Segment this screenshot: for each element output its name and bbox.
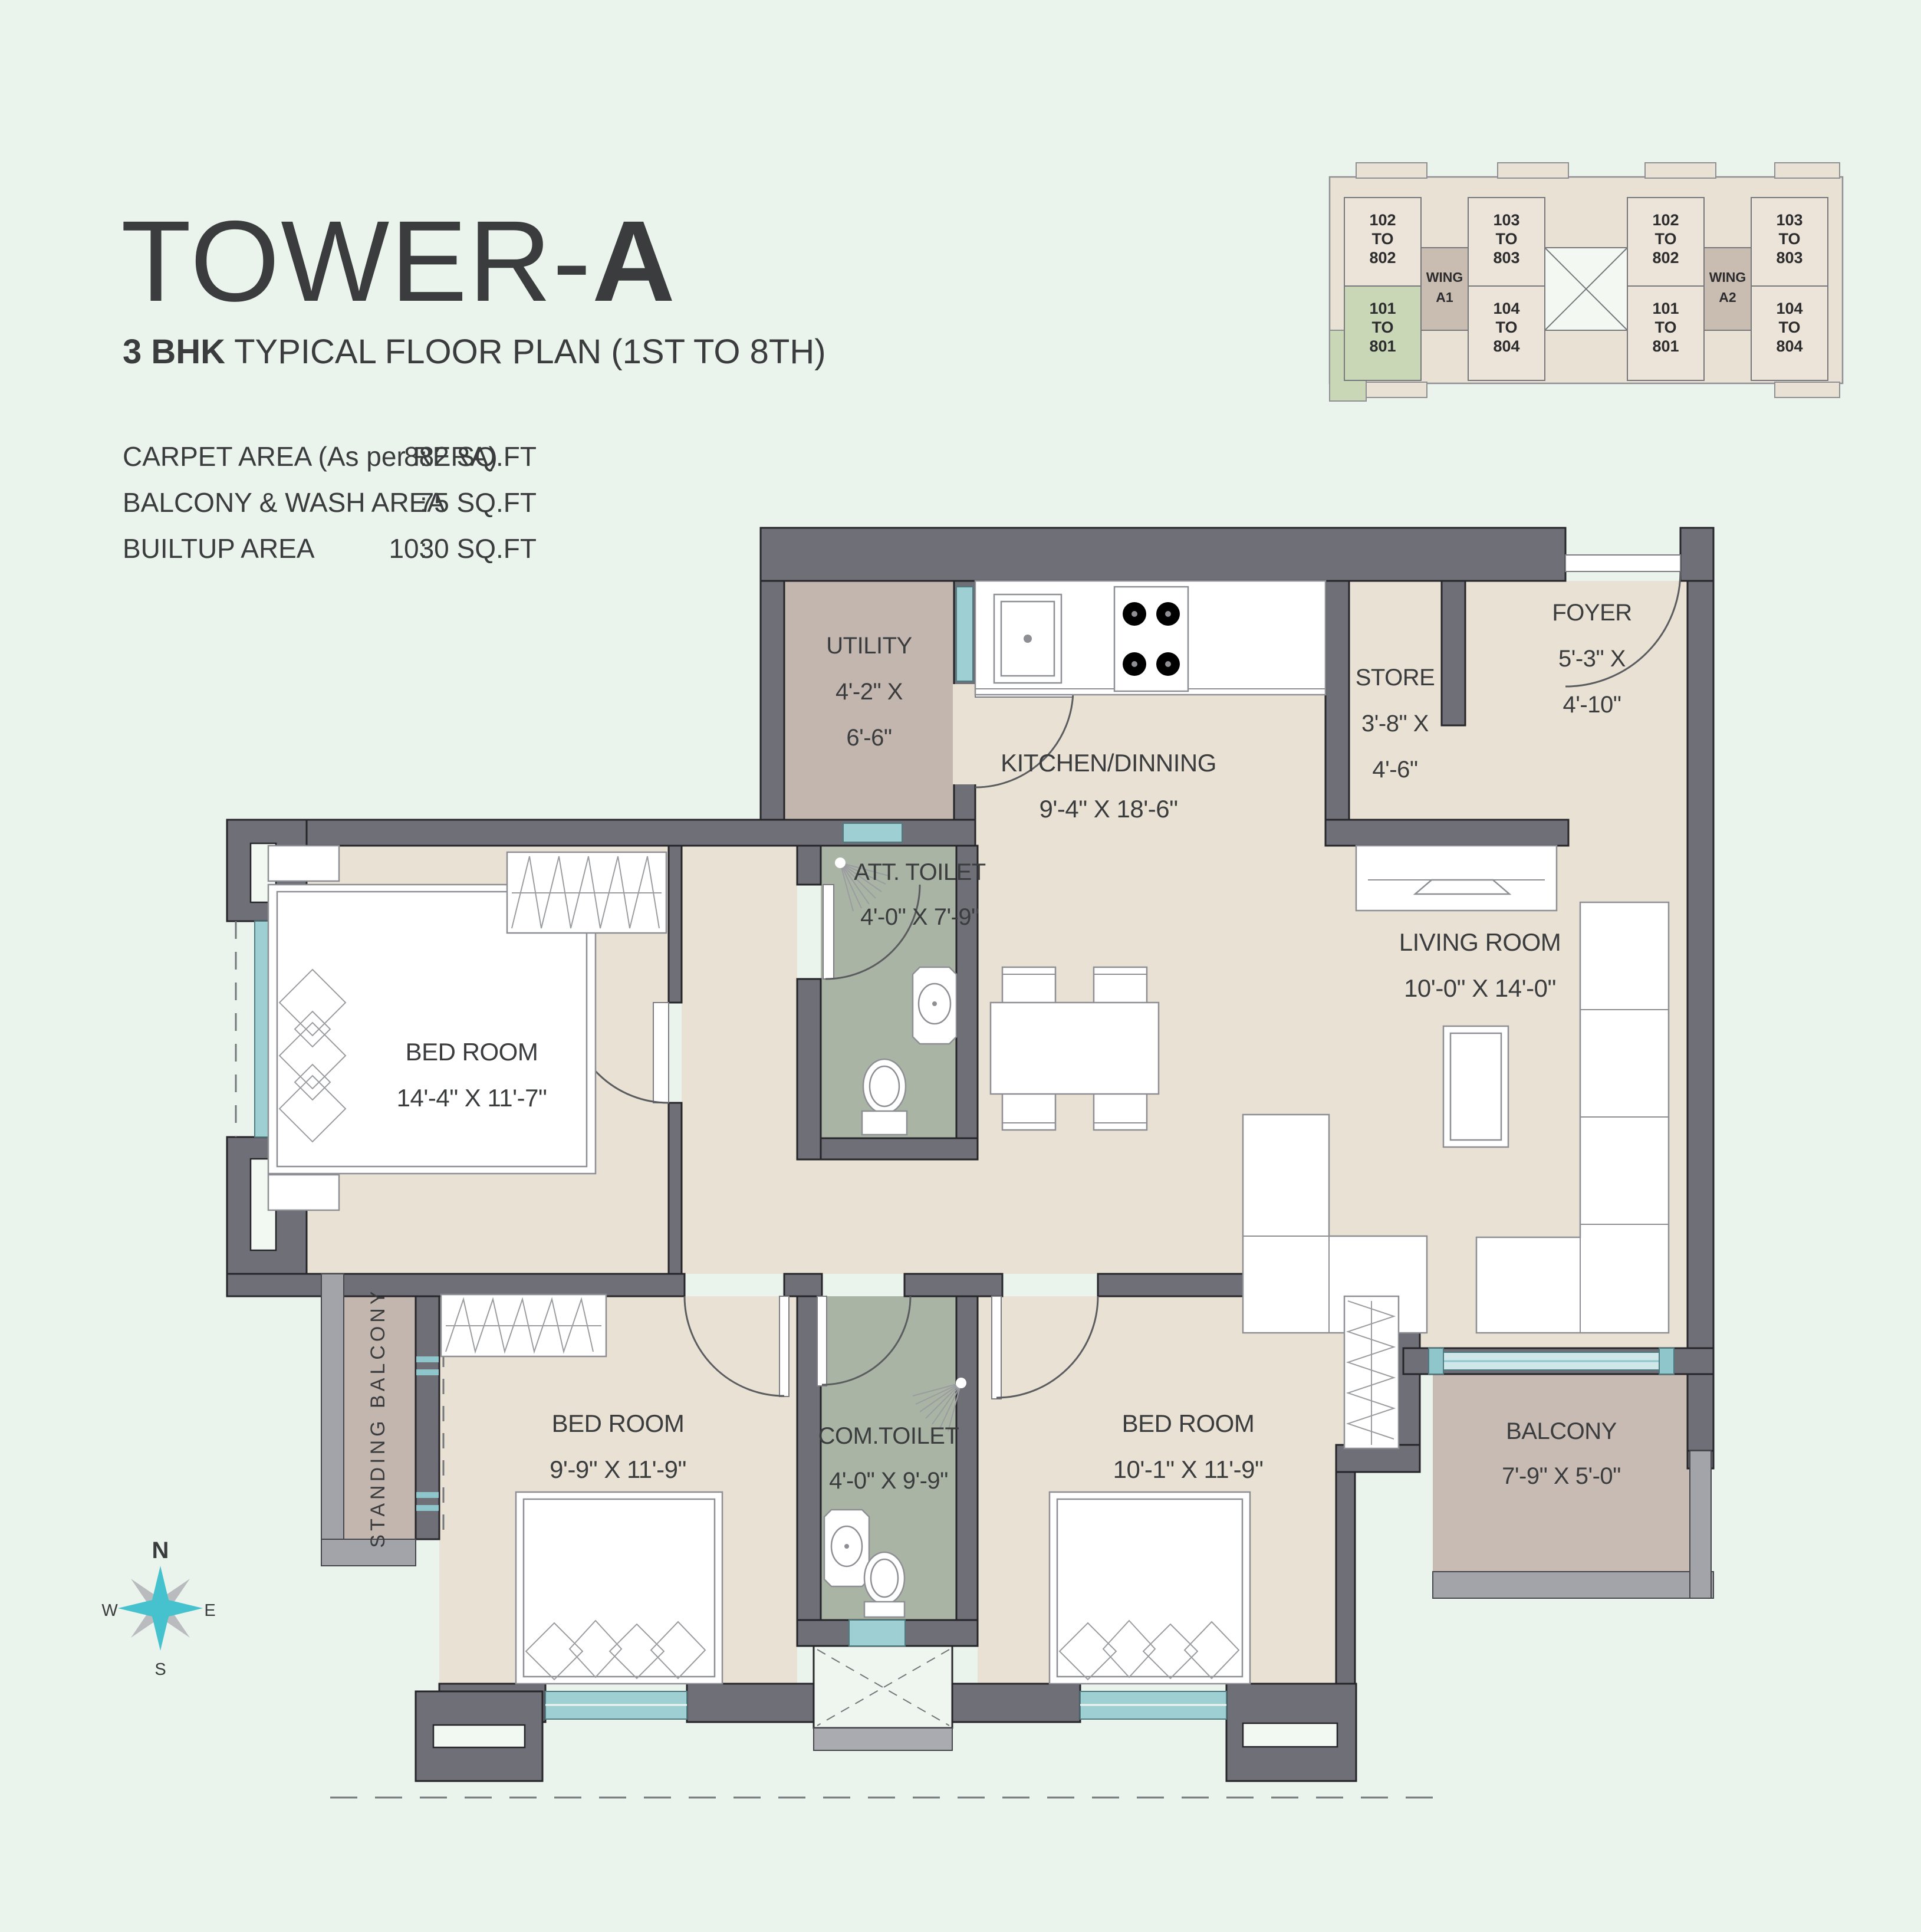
key-label: TO bbox=[1371, 230, 1393, 248]
compass-rose: N E S W bbox=[101, 1537, 215, 1679]
label-store: STORE bbox=[1356, 665, 1435, 691]
bedside-table bbox=[268, 1175, 339, 1210]
label-utility-dim: 6'-6" bbox=[846, 725, 892, 751]
bedside-table bbox=[268, 846, 339, 881]
key-label: 801 bbox=[1369, 337, 1396, 355]
label-living: LIVING ROOM bbox=[1399, 928, 1561, 956]
key-label: 103 bbox=[1493, 211, 1519, 229]
label-foyer-dim: 4'-10" bbox=[1563, 692, 1621, 718]
key-label: 804 bbox=[1776, 337, 1802, 355]
area-table: CARPET AREA (As per RERA) : 882 SQ.FT BA… bbox=[123, 441, 537, 564]
key-wing-label: A1 bbox=[1436, 290, 1453, 305]
basin-drain bbox=[932, 1001, 937, 1006]
compass-n: N bbox=[152, 1537, 169, 1563]
label-standing-balcony: STANDING BALCONY bbox=[367, 1287, 389, 1547]
key-wing-a1 bbox=[1421, 248, 1468, 330]
key-plan-tab bbox=[1775, 382, 1840, 397]
bed-left-inner bbox=[524, 1499, 715, 1677]
label-living-dim: 10'-0" X 14'-0" bbox=[1404, 974, 1556, 1002]
bed-right-inner bbox=[1057, 1499, 1242, 1677]
wall-att-toilet-right bbox=[956, 846, 978, 1159]
coffee-table-top bbox=[1450, 1033, 1501, 1140]
label-bedroom-master-dim: 14'-4" X 11'-7" bbox=[397, 1084, 547, 1112]
label-foyer: FOYER bbox=[1552, 600, 1631, 626]
title-main: TOWER- bbox=[121, 197, 592, 326]
shower-head bbox=[835, 857, 846, 868]
compass-e: E bbox=[204, 1601, 215, 1620]
wall-bedrooms-band-a bbox=[227, 1274, 685, 1296]
burner-dot bbox=[1165, 661, 1171, 667]
label-att-toilet-dim: 4'-0" X 7'-9" bbox=[860, 904, 979, 930]
wall-att-toilet-bottom bbox=[821, 1138, 978, 1159]
builtup-area-label: BUILTUP AREA bbox=[123, 533, 315, 564]
label-foyer-dim: 5'-3" X bbox=[1558, 646, 1626, 672]
toilet-com-tank bbox=[864, 1602, 904, 1617]
key-label: TO bbox=[1778, 230, 1800, 248]
title-block: TOWER-A 3 BHK TYPICAL FLOOR PLAN (1ST TO… bbox=[121, 197, 826, 564]
key-wing-label: WING bbox=[1426, 270, 1463, 285]
compass-cardinal-star bbox=[118, 1566, 203, 1651]
wall-bedrooms-band-c bbox=[904, 1274, 1002, 1296]
key-wing-label: A2 bbox=[1719, 290, 1736, 305]
wall-bottom-3 bbox=[952, 1684, 1080, 1722]
window-att-toilet bbox=[843, 823, 902, 842]
sink-drain bbox=[1024, 635, 1032, 643]
wall-bottom-2 bbox=[687, 1684, 814, 1722]
pier-slot bbox=[1243, 1723, 1337, 1747]
wall-com-toilet-right bbox=[956, 1296, 978, 1645]
bedroom-right-door-leaf bbox=[992, 1296, 1001, 1399]
builtup-area-value: 1030 SQ.FT bbox=[389, 533, 537, 564]
att-toilet-door-leaf bbox=[823, 885, 834, 979]
key-plan: 102 TO 802 101 TO 801 WING A1 103 TO 803… bbox=[1330, 163, 1843, 401]
key-label: TO bbox=[1495, 230, 1517, 248]
key-label: TO bbox=[1654, 230, 1676, 248]
stove-icon bbox=[1114, 587, 1188, 691]
bedroom-left-door-leaf bbox=[779, 1296, 789, 1397]
wall-bedroom-master-right-b bbox=[669, 1103, 682, 1274]
key-label: 104 bbox=[1776, 300, 1802, 317]
parapet-balcony-bottom bbox=[1433, 1572, 1713, 1598]
subtitle-bold: 3 BHK bbox=[123, 333, 225, 371]
pier-slot bbox=[433, 1725, 525, 1747]
label-store-dim: 3'-8" X bbox=[1361, 711, 1429, 737]
key-label: 802 bbox=[1369, 249, 1396, 267]
subtitle-rest: TYPICAL FLOOR PLAN (1ST TO 8TH) bbox=[225, 333, 826, 371]
key-label: 103 bbox=[1776, 211, 1802, 229]
label-balcony: BALCONY bbox=[1506, 1418, 1617, 1444]
sliding-post bbox=[1429, 1348, 1443, 1374]
key-label: 102 bbox=[1369, 211, 1396, 229]
window-utility bbox=[956, 587, 973, 681]
wall-top-right bbox=[1680, 528, 1713, 581]
wall-utility-left bbox=[761, 581, 784, 820]
parapet-balcony-right bbox=[1690, 1451, 1711, 1598]
standing-balcony-window-mark bbox=[416, 1505, 439, 1511]
master-bedroom-door-leaf bbox=[653, 1003, 669, 1103]
key-label: 802 bbox=[1652, 249, 1679, 267]
wall-balcony-right-upper bbox=[1688, 1374, 1713, 1451]
wash-counter bbox=[1356, 846, 1557, 911]
toilet-com-bowl bbox=[871, 1559, 898, 1597]
wall-foyer-left bbox=[1442, 581, 1465, 725]
key-plan-tab bbox=[1498, 163, 1568, 178]
label-bedroom-left: BED ROOM bbox=[552, 1409, 685, 1437]
window-com-toilet bbox=[849, 1620, 905, 1646]
label-kitchen-dim: 9'-4" X 18'-6" bbox=[1040, 795, 1178, 823]
label-com-toilet-dim: 4'-0" X 9'-9" bbox=[829, 1468, 948, 1494]
parapet-standing-balcony-left bbox=[321, 1274, 344, 1566]
wall-right bbox=[1688, 581, 1713, 1468]
key-label: 803 bbox=[1493, 249, 1519, 267]
key-label: 101 bbox=[1369, 300, 1396, 317]
key-label: 803 bbox=[1776, 249, 1802, 267]
dining-table-icon bbox=[991, 1003, 1159, 1094]
label-com-toilet: COM.TOILET bbox=[818, 1423, 959, 1449]
key-label: 801 bbox=[1652, 337, 1679, 355]
compass-s: S bbox=[154, 1660, 166, 1679]
wall-att-toilet-left-a bbox=[797, 846, 821, 885]
burner-dot bbox=[1131, 611, 1137, 617]
key-label: TO bbox=[1654, 318, 1676, 336]
label-balcony-dim: 7'-9" X 5'-0" bbox=[1502, 1463, 1621, 1489]
floor-plan-canvas: TOWER-A 3 BHK TYPICAL FLOOR PLAN (1ST TO… bbox=[0, 0, 1921, 1932]
wall-store-left bbox=[1325, 581, 1349, 820]
com-toilet-door-leaf bbox=[817, 1296, 827, 1386]
key-label: TO bbox=[1495, 318, 1517, 336]
burner-dot bbox=[1165, 611, 1171, 617]
label-bedroom-right: BED ROOM bbox=[1122, 1409, 1255, 1437]
key-label: 101 bbox=[1652, 300, 1679, 317]
key-wing-label: WING bbox=[1709, 270, 1746, 285]
burner-dot bbox=[1131, 661, 1137, 667]
duct-ledge bbox=[814, 1728, 952, 1750]
key-label: 804 bbox=[1493, 337, 1519, 355]
label-att-toilet: ATT. TOILET bbox=[854, 859, 986, 885]
balcony-area-value: 75 SQ.FT bbox=[419, 487, 537, 518]
floor-store bbox=[1349, 581, 1442, 820]
entry-door-leaf bbox=[1565, 555, 1680, 571]
page-subtitle: 3 BHK TYPICAL FLOOR PLAN (1ST TO 8TH) bbox=[123, 333, 826, 371]
wall-att-toilet-left-b bbox=[797, 979, 821, 1159]
wall-bedrooms-band-b bbox=[784, 1274, 822, 1296]
key-plan-tab bbox=[1356, 163, 1427, 178]
page-title: TOWER-A bbox=[121, 197, 676, 326]
balcony-area-label: BALCONY & WASH AREA bbox=[123, 487, 445, 518]
label-utility: UTILITY bbox=[826, 633, 912, 659]
key-label: 102 bbox=[1652, 211, 1679, 229]
sliding-post bbox=[1659, 1348, 1674, 1374]
key-plan-tab bbox=[1645, 163, 1716, 178]
wall-store-bottom bbox=[1325, 820, 1568, 846]
key-label: TO bbox=[1778, 318, 1800, 336]
wall-standing-balcony-right bbox=[416, 1296, 439, 1539]
floor-passage bbox=[682, 1159, 1241, 1274]
standing-balcony-window-mark bbox=[416, 1492, 439, 1498]
label-bedroom-left-dim: 9'-9" X 11'-9" bbox=[550, 1455, 686, 1483]
label-bedroom-master: BED ROOM bbox=[406, 1038, 538, 1066]
carpet-area-value: 882 SQ.FT bbox=[404, 441, 537, 472]
key-plan-tab bbox=[1775, 163, 1840, 178]
toilet-att-bowl bbox=[870, 1066, 899, 1106]
floor-plan-page: TOWER-A 3 BHK TYPICAL FLOOR PLAN (1ST TO… bbox=[0, 0, 1921, 1932]
label-store-dim: 4'-6" bbox=[1372, 757, 1417, 783]
key-label: TO bbox=[1371, 318, 1393, 336]
toilet-att-tank bbox=[862, 1111, 907, 1135]
wall-bedroom-master-right-a bbox=[669, 846, 682, 1003]
wall-top bbox=[761, 528, 1565, 581]
label-bedroom-right-dim: 10'-1" X 11'-9" bbox=[1113, 1455, 1264, 1483]
wash-basin-icon bbox=[1415, 880, 1509, 894]
label-utility-dim: 4'-2" X bbox=[835, 679, 903, 705]
compass-w: W bbox=[101, 1601, 118, 1620]
basin-drain bbox=[844, 1544, 849, 1549]
standing-balcony-window-mark bbox=[416, 1369, 439, 1375]
title-suffix: A bbox=[592, 197, 676, 326]
key-wing-a2 bbox=[1704, 248, 1751, 330]
shower-head bbox=[956, 1378, 966, 1388]
key-label: 104 bbox=[1493, 300, 1519, 317]
utility-door-opening bbox=[953, 684, 976, 784]
standing-balcony-window-mark bbox=[416, 1356, 439, 1362]
wall-bedroom-right-east-b bbox=[1336, 1472, 1355, 1684]
label-kitchen: KITCHEN/DINNING bbox=[1001, 749, 1216, 777]
